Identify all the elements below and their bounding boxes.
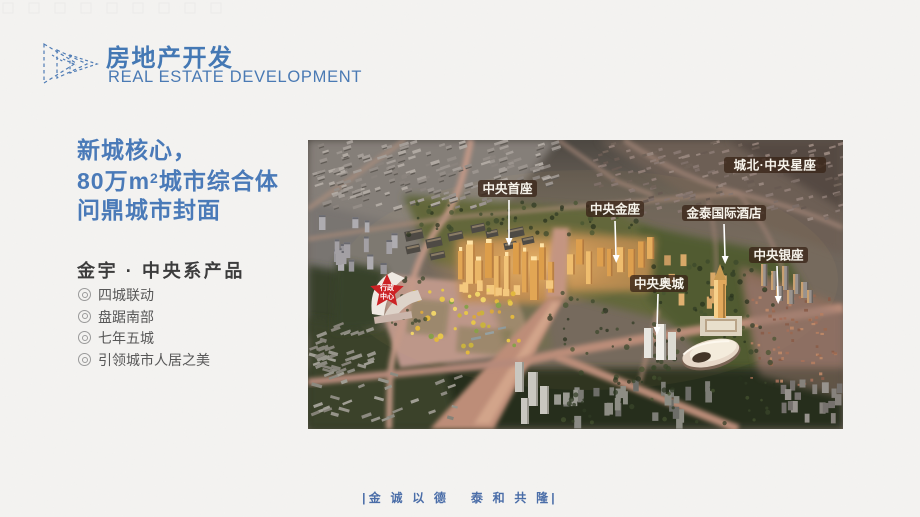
svg-text:行政: 行政	[379, 283, 395, 292]
svg-text:中央奥城: 中央奥城	[634, 276, 685, 291]
svg-text:中央金座: 中央金座	[590, 202, 641, 217]
svg-text:城北·中央星座: 城北·中央星座	[734, 158, 817, 173]
svg-text:中心: 中心	[380, 292, 394, 301]
svg-text:中央首座: 中央首座	[482, 181, 533, 196]
svg-text:金泰国际酒店: 金泰国际酒店	[685, 206, 762, 221]
svg-text:中央银座: 中央银座	[753, 248, 804, 263]
